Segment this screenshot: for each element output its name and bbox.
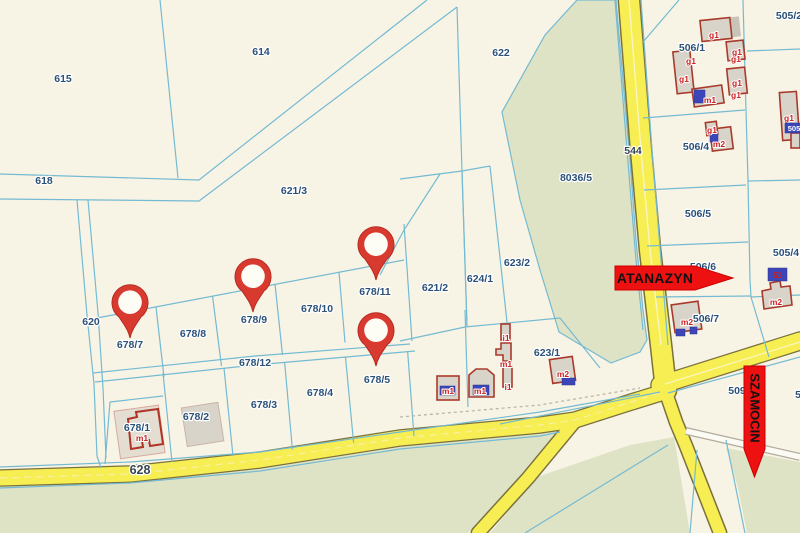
svg-text:g1: g1 <box>707 125 717 135</box>
svg-text:622: 622 <box>492 47 510 59</box>
svg-text:505: 505 <box>788 124 800 133</box>
svg-text:m2: m2 <box>557 369 570 379</box>
svg-text:g1: g1 <box>709 30 719 40</box>
svg-text:678/11: 678/11 <box>359 286 391 298</box>
svg-text:8036/5: 8036/5 <box>560 172 592 184</box>
svg-text:678/7: 678/7 <box>117 339 143 351</box>
svg-text:g1: g1 <box>731 90 741 100</box>
svg-text:678/12: 678/12 <box>239 357 271 369</box>
svg-text:m1: m1 <box>474 386 487 396</box>
svg-text:506/5: 506/5 <box>685 208 711 220</box>
svg-text:623/2: 623/2 <box>504 257 530 269</box>
svg-text:ATANAZYN: ATANAZYN <box>617 271 693 286</box>
svg-text:m1: m1 <box>500 359 513 369</box>
svg-text:620: 620 <box>82 316 100 328</box>
svg-text:g1: g1 <box>731 54 741 64</box>
svg-text:SZAMOCIN: SZAMOCIN <box>748 373 763 442</box>
svg-text:623/1: 623/1 <box>534 347 560 359</box>
svg-text:615: 615 <box>54 73 72 85</box>
svg-text:624/1: 624/1 <box>467 273 493 285</box>
svg-text:g1: g1 <box>784 113 794 123</box>
svg-text:g1: g1 <box>679 74 689 84</box>
svg-text:m2: m2 <box>770 297 783 307</box>
svg-text:544: 544 <box>624 145 642 157</box>
svg-text:i1: i1 <box>504 382 511 392</box>
svg-text:678/2: 678/2 <box>183 411 209 423</box>
svg-text:i1: i1 <box>502 333 509 343</box>
svg-text:5: 5 <box>795 389 800 401</box>
svg-text:509: 509 <box>728 385 746 397</box>
svg-text:m2: m2 <box>713 139 726 149</box>
svg-text:614: 614 <box>252 46 270 58</box>
svg-text:628: 628 <box>130 463 151 477</box>
svg-text:621/2: 621/2 <box>422 282 448 294</box>
svg-text:505/2: 505/2 <box>776 10 800 22</box>
svg-text:51: 51 <box>773 271 782 280</box>
svg-text:618: 618 <box>35 175 53 187</box>
svg-text:g1: g1 <box>732 78 742 88</box>
svg-text:506/7: 506/7 <box>693 313 719 325</box>
svg-text:m1: m1 <box>442 386 455 396</box>
svg-text:678/3: 678/3 <box>251 399 277 411</box>
svg-text:678/5: 678/5 <box>364 374 390 386</box>
svg-text:g1: g1 <box>686 56 696 66</box>
svg-text:505/4: 505/4 <box>773 247 799 259</box>
svg-text:678/8: 678/8 <box>180 328 206 340</box>
svg-text:m1: m1 <box>136 433 149 443</box>
svg-text:621/3: 621/3 <box>281 185 307 197</box>
svg-text:m1: m1 <box>704 95 717 105</box>
svg-text:506/4: 506/4 <box>683 141 709 153</box>
svg-text:678/4: 678/4 <box>307 387 333 399</box>
svg-text:678/10: 678/10 <box>301 303 333 315</box>
svg-text:m2: m2 <box>681 317 694 327</box>
svg-text:506/1: 506/1 <box>679 42 705 54</box>
svg-text:678/9: 678/9 <box>241 314 267 326</box>
